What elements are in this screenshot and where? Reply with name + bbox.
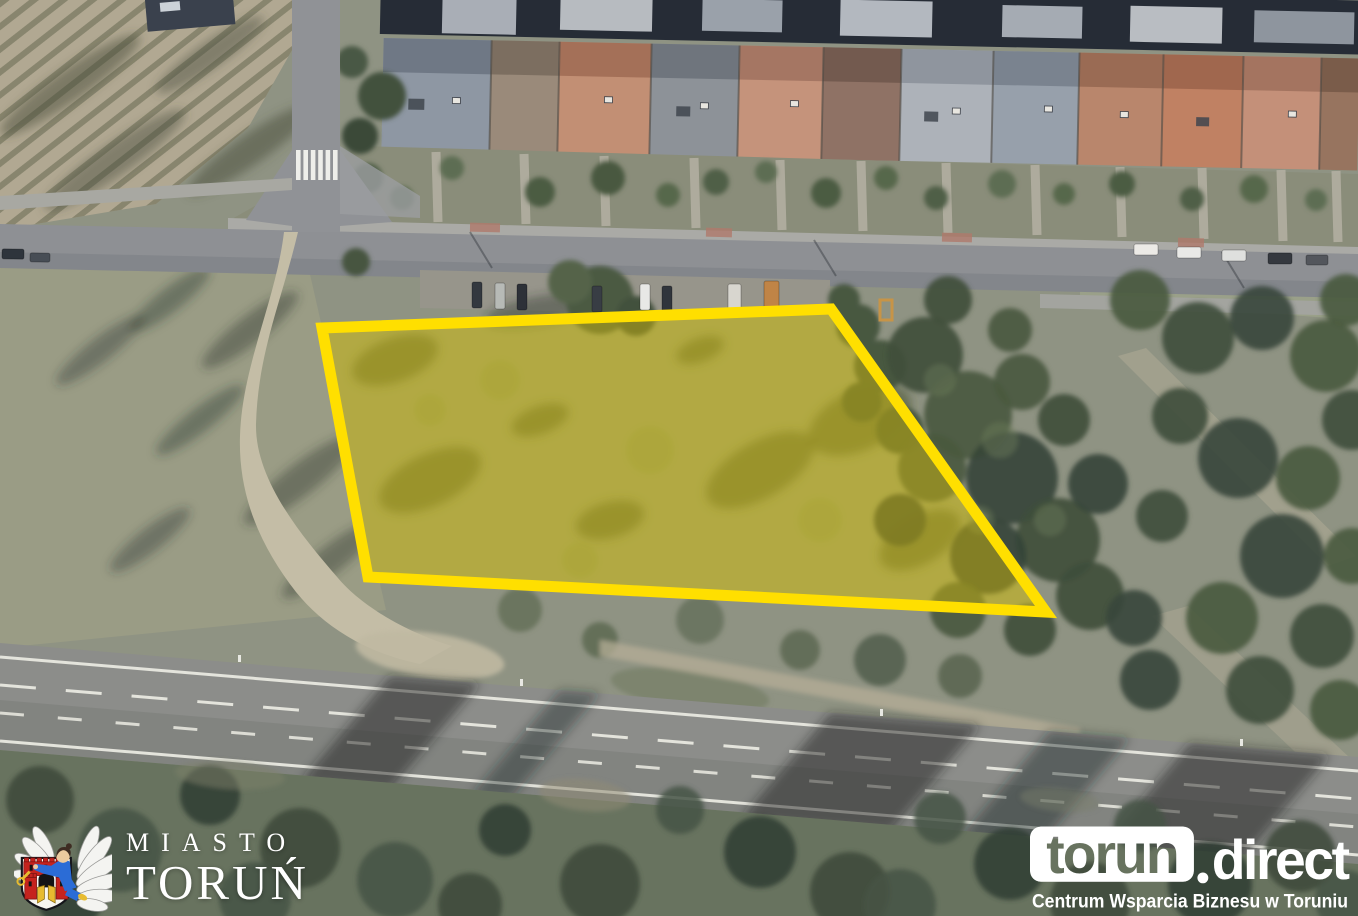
direct-text: direct <box>1212 829 1350 891</box>
city-logo-text: MIASTO TORUŃ <box>126 828 309 908</box>
city-logo-torun: TORUŃ <box>126 858 309 908</box>
city-logo-miasto: MIASTO <box>126 828 309 858</box>
torun-coat-of-arms-icon <box>14 796 112 912</box>
torun-box <box>1030 827 1194 882</box>
logo-dot-icon <box>1197 872 1208 883</box>
houses-row <box>377 0 1358 170</box>
city-logo: MIASTO TORUŃ <box>14 796 309 912</box>
aerial-photo-stage: MIASTO TORUŃ torun direct Centrum Wsparc… <box>0 0 1358 916</box>
house-roofs <box>381 38 1358 170</box>
tagline-text: Centrum Wsparcia Biznesu w Toruniu <box>1032 891 1348 913</box>
aerial-basemap <box>0 0 1358 916</box>
torun-direct-logo: torun direct Centrum Wsparcia Biznesu w … <box>1028 822 1354 914</box>
